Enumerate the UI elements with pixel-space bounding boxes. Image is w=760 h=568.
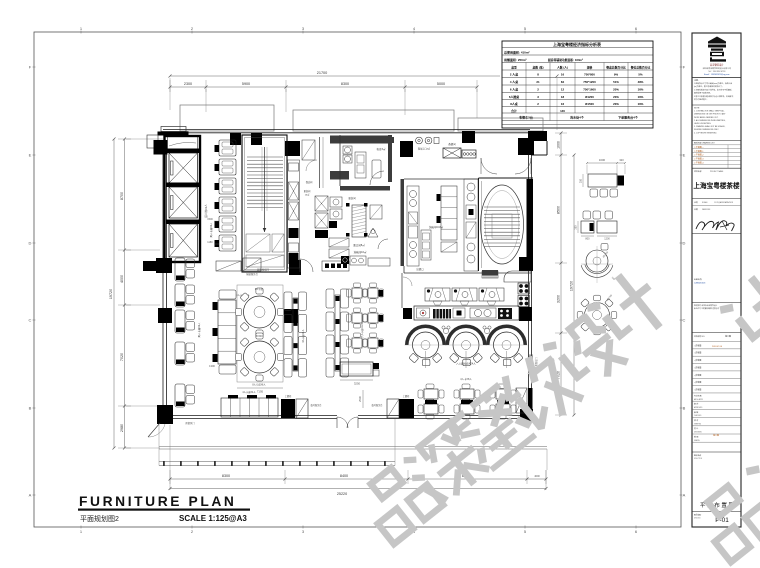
svg-text:上海宝粤楼茶楼: 上海宝粤楼茶楼 — [693, 181, 740, 190]
svg-text:A: A — [29, 493, 32, 498]
svg-text:桌数 (张): 桌数 (张) — [532, 65, 543, 69]
svg-text:NOTE:: NOTE: — [694, 107, 700, 109]
svg-text:1-88842018-8: 1-88842018-8 — [694, 283, 705, 285]
svg-text:2300: 2300 — [184, 82, 192, 86]
svg-text:洗碗间16.8㎡: 洗碗间16.8㎡ — [429, 225, 444, 229]
svg-text:18: 18 — [561, 95, 565, 99]
svg-text:下单服务台4个: 下单服务台4个 — [618, 115, 639, 120]
svg-text:2 人桌: 2 人桌 — [510, 71, 518, 76]
svg-text:5900: 5900 — [242, 82, 250, 86]
svg-text:4000: 4000 — [120, 275, 124, 283]
svg-text:DIMENSIONS ON SITE PRIOR TO AN: DIMENSIONS ON SITE PRIOR TO ANY — [694, 113, 726, 116]
svg-text:平面规划图2: 平面规划图2 — [80, 514, 119, 523]
svg-text:51%: 51% — [613, 80, 619, 84]
svg-text:人数 (人): 人数 (人) — [556, 65, 568, 69]
svg-text:750*800: 750*800 — [584, 72, 595, 76]
svg-text:16: 16 — [561, 102, 565, 106]
svg-text:上海宝粤楼经济指标分析表: 上海宝粤楼经济指标分析表 — [553, 41, 601, 47]
svg-text:3. DRAWING SHALL NOT BE SCALED: 3. DRAWING SHALL NOT BE SCALED, — [694, 125, 726, 128]
svg-text:6人圆桌: 6人圆桌 — [509, 94, 519, 99]
svg-text:320: 320 — [619, 158, 624, 162]
svg-text:CHECKED: CHECKED — [694, 415, 702, 417]
svg-text:800: 800 — [585, 238, 590, 241]
svg-text:FURNITURE PLAN: FURNITURE PLAN — [79, 494, 237, 509]
svg-text:9%: 9% — [614, 72, 619, 76]
svg-text:5000: 5000 — [437, 82, 445, 86]
svg-text:B: B — [29, 406, 32, 411]
svg-text:DWG TITLE: DWG TITLE — [694, 458, 702, 460]
svg-text:Ø1200: Ø1200 — [585, 95, 594, 99]
svg-text:两人卡座X6人: 两人卡座X6人 — [209, 222, 213, 237]
svg-text:备餐间: 备餐间 — [448, 142, 456, 146]
svg-text:12: 12 — [561, 87, 565, 91]
svg-text:19720: 19720 — [570, 281, 574, 291]
svg-text:1000: 1000 — [557, 141, 561, 149]
svg-text:21700: 21700 — [317, 71, 328, 75]
svg-text:用餐面积: 250m²: 用餐面积: 250m² — [504, 57, 527, 62]
svg-text:2018.07.06: 2018.07.06 — [712, 346, 723, 348]
svg-text:4. COPYRIGHT RESERVED.: 4. COPYRIGHT RESERVED. — [694, 132, 717, 134]
svg-text:总使用面积: 410m²: 总使用面积: 410m² — [504, 49, 530, 54]
svg-text:C: C — [683, 318, 686, 323]
svg-text:厨房等辅助功能面积: 160m²: 厨房等辅助功能面积: 160m² — [548, 58, 583, 62]
svg-text:LEVELS IN METRES.: LEVELS IN METRES. — [694, 123, 712, 125]
svg-text:8300: 8300 — [222, 474, 230, 478]
svg-text:3250: 3250 — [354, 382, 361, 386]
svg-text:餐桌总数百分比: 餐桌总数百分比 — [605, 65, 626, 69]
svg-text:8400: 8400 — [340, 474, 348, 478]
svg-text:4人卡X8人: 4人卡X8人 — [460, 377, 472, 381]
svg-text:2530: 2530 — [358, 396, 362, 402]
svg-text:250: 250 — [580, 178, 583, 183]
svg-text:E: E — [29, 153, 32, 158]
svg-text:D: D — [29, 241, 32, 246]
svg-text:Ø1500: Ø1500 — [585, 102, 594, 106]
svg-text:8300: 8300 — [341, 82, 349, 86]
svg-text:DWG NO.: DWG NO. — [694, 518, 701, 520]
svg-text:84: 84 — [561, 80, 565, 84]
svg-text:16%: 16% — [638, 95, 644, 99]
svg-text:规格: 规格 — [586, 65, 593, 69]
svg-text:1. CONTRACTOR SHALL VERIFY ALL: 1. CONTRACTOR SHALL VERIFY ALL — [694, 110, 725, 113]
svg-text:B: B — [683, 406, 686, 411]
svg-text:Email：1392652678@qq.com: Email：1392652678@qq.com — [704, 73, 730, 76]
svg-text:更衣间: 更衣间 — [348, 196, 356, 200]
svg-text:DATE2018: DATE2018 — [702, 208, 710, 211]
svg-text:7020: 7020 — [120, 353, 124, 361]
svg-text:1:125@A3/DRAWN/2018: 1:125@A3/DRAWN/2018 — [714, 201, 733, 204]
svg-text:8人桌: 8人桌 — [510, 101, 517, 106]
svg-text:2980: 2980 — [120, 424, 124, 432]
svg-text:3200: 3200 — [557, 295, 561, 303]
svg-text:Tel：139 2652 6718: Tel：139 2652 6718 — [708, 70, 725, 73]
svg-text:桌型: 桌型 — [511, 65, 517, 69]
svg-text:1300: 1300 — [209, 364, 215, 368]
svg-text:6 人桌: 6 人桌 — [510, 86, 518, 91]
svg-text:7195: 7195 — [257, 390, 264, 394]
svg-text:两人卡座X6人: 两人卡座X6人 — [197, 322, 201, 337]
svg-text:2. ALL DIMENSIONS IN MILLIMETR: 2. ALL DIMENSIONS IN MILLIMETRES, — [694, 119, 726, 122]
svg-text:200: 200 — [534, 474, 539, 478]
svg-text:5%: 5% — [638, 72, 643, 76]
svg-text:1600: 1600 — [599, 158, 606, 162]
svg-text:20%: 20% — [613, 95, 619, 99]
svg-text:D: D — [683, 241, 686, 246]
svg-text:16%: 16% — [638, 87, 644, 91]
svg-text:1500: 1500 — [207, 218, 213, 221]
svg-text:250: 250 — [575, 225, 578, 230]
svg-text:VERIFIED: VERIFIED — [694, 423, 702, 425]
svg-text:面点间8㎡: 面点间8㎡ — [353, 243, 365, 247]
svg-text:洗碗间16㎡: 洗碗间16㎡ — [354, 250, 367, 254]
svg-text:8700: 8700 — [120, 192, 124, 200]
svg-text:4 人桌: 4 人桌 — [510, 79, 518, 84]
svg-text:21: 21 — [536, 80, 540, 84]
svg-text:16%: 16% — [638, 102, 644, 106]
svg-text:合计: 合计 — [511, 108, 517, 113]
svg-text:SCALE 1:125@A3: SCALE 1:125@A3 — [179, 514, 247, 523]
svg-text:货人梯X3人: 货人梯X3人 — [204, 204, 208, 218]
svg-text:A: A — [683, 493, 686, 498]
svg-text:20%: 20% — [613, 87, 619, 91]
svg-text:E: E — [683, 153, 686, 158]
svg-text:餐位总数百分比: 餐位总数百分比 — [630, 65, 651, 69]
svg-text:色库3㎡: 色库3㎡ — [377, 147, 386, 151]
svg-text:Ø1500: Ø1500 — [255, 335, 263, 338]
svg-text:出餐口: 出餐口 — [416, 267, 424, 271]
svg-text:FIGURED DIMENSIONS ONLY.: FIGURED DIMENSIONS ONLY. — [694, 129, 719, 131]
svg-text:洗水处4个: 洗水处4个 — [570, 115, 585, 120]
svg-text:未经许可 不得复制/翻版 违者必究: 未经许可 不得复制/翻版 违者必究 — [694, 307, 719, 310]
svg-text:48%: 48% — [638, 80, 644, 84]
svg-text:25220: 25220 — [337, 492, 347, 496]
svg-text:146: 146 — [560, 109, 565, 113]
svg-text:8500: 8500 — [557, 206, 561, 214]
svg-text:19720: 19720 — [109, 289, 113, 299]
svg-text:DESIGNED: DESIGNED — [694, 432, 703, 434]
svg-text:八人圆卡房X24人: 八人圆卡房X24人 — [456, 362, 476, 366]
svg-text:PROJECT NAME: PROJECT NAME — [710, 170, 724, 173]
svg-text:WORK BEING CARRIED OUT.: WORK BEING CARRIED OUT. — [694, 116, 719, 119]
svg-text:20%: 20% — [613, 102, 619, 106]
svg-text:750*1600: 750*1600 — [583, 87, 596, 91]
svg-text:SCALE: SCALE — [702, 201, 708, 204]
svg-text:C: C — [29, 318, 32, 323]
svg-text:16: 16 — [561, 72, 565, 76]
svg-text:750*1200: 750*1200 — [583, 80, 596, 84]
svg-text:收餐车3台: 收餐车3台 — [519, 115, 533, 120]
svg-text:1180: 1180 — [207, 241, 213, 244]
svg-text:1200: 1200 — [604, 238, 610, 241]
